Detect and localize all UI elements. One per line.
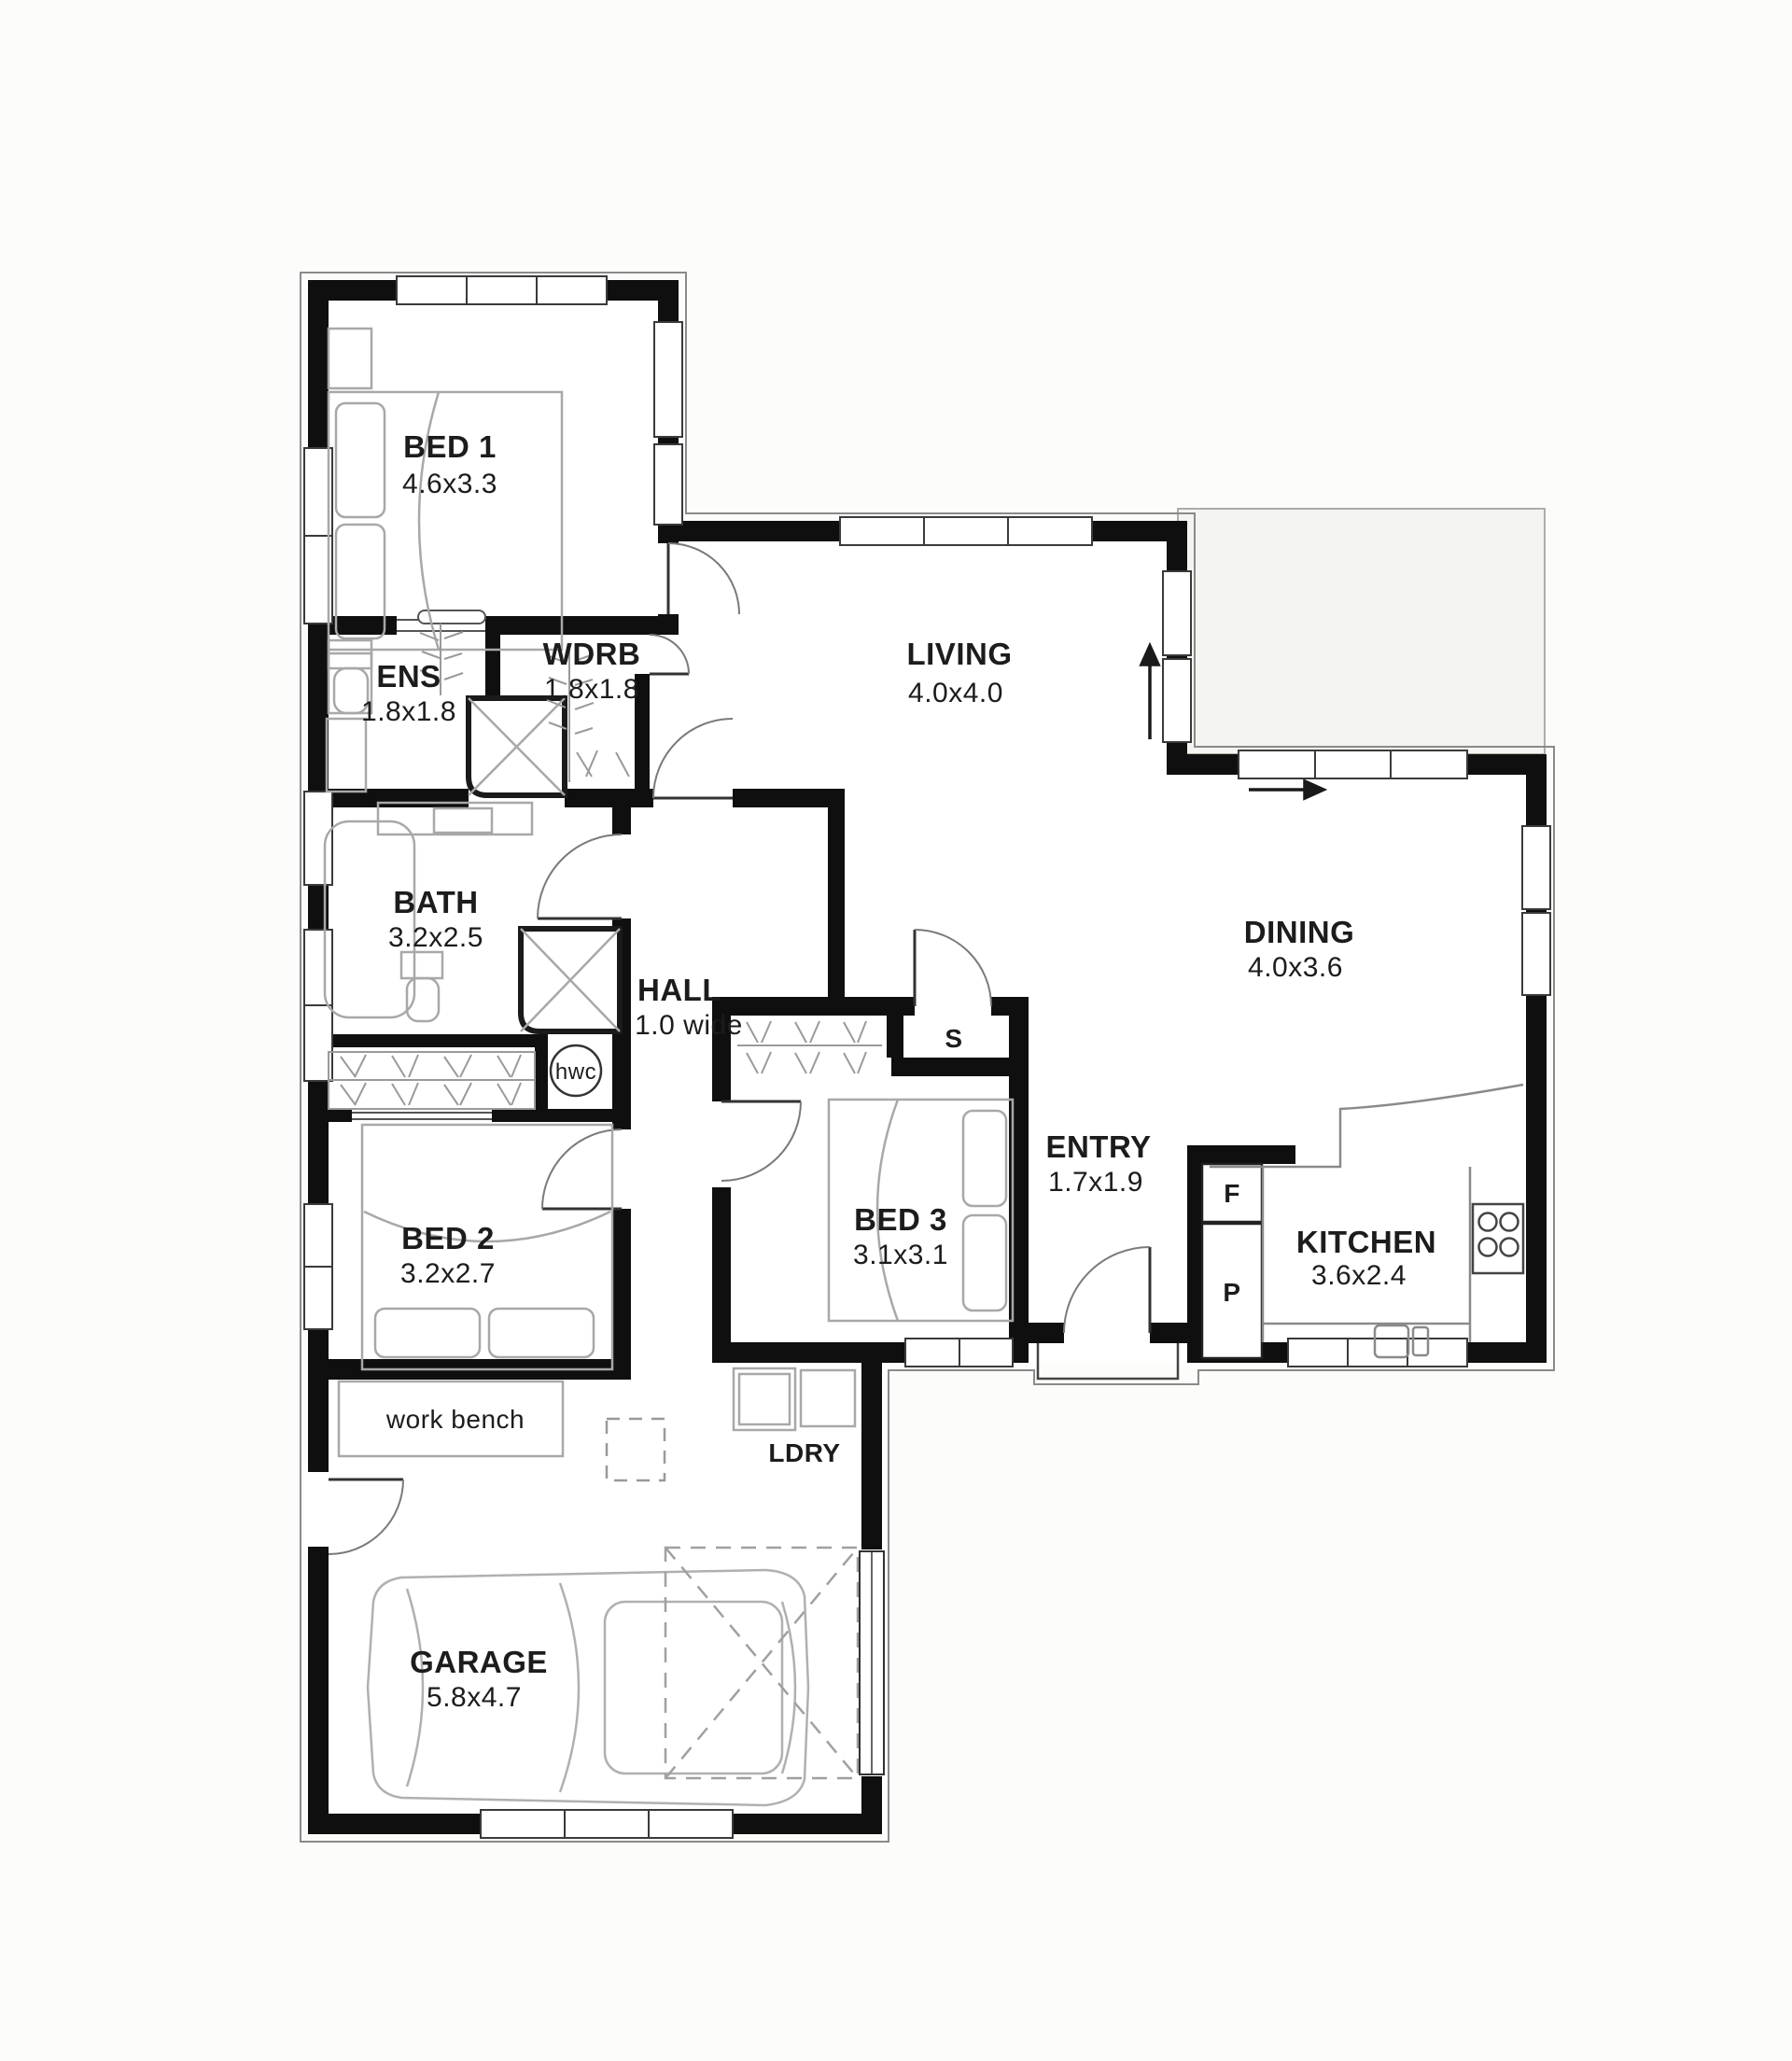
cooktop bbox=[1473, 1204, 1523, 1273]
label-hwc: hwc bbox=[555, 1059, 596, 1085]
room-label-ens: ENS bbox=[376, 659, 441, 694]
room-dims-kitchen: 3.6x2.4 bbox=[1311, 1260, 1407, 1291]
floor-plan-drawing: BED 1 4.6x3.3 ENS 1.8x1.8 WDRB 1.8x1.8 L… bbox=[0, 0, 1792, 2061]
room-label-ldry: LDRY bbox=[768, 1438, 840, 1467]
room-label-entry: ENTRY bbox=[1045, 1129, 1151, 1164]
room-label-wdrb: WDRB bbox=[543, 637, 641, 671]
room-dims-entry: 1.7x1.9 bbox=[1048, 1167, 1143, 1198]
room-dims-garage: 5.8x4.7 bbox=[427, 1682, 522, 1713]
garage-side-door-opening bbox=[304, 1472, 332, 1547]
room-label-dining: DINING bbox=[1244, 915, 1355, 949]
room-dims-ens: 1.8x1.8 bbox=[361, 696, 456, 727]
label-fridge: F bbox=[1224, 1179, 1240, 1208]
deck-outline bbox=[1178, 509, 1545, 754]
room-label-bed3: BED 3 bbox=[854, 1202, 947, 1237]
room-dims-wdrb: 1.8x1.8 bbox=[544, 674, 639, 705]
label-workbench: work bench bbox=[385, 1405, 525, 1434]
room-dims-bed2: 3.2x2.7 bbox=[400, 1258, 496, 1289]
floor-plan-page: BED 1 4.6x3.3 ENS 1.8x1.8 WDRB 1.8x1.8 L… bbox=[0, 0, 1792, 2061]
room-dims-bath: 3.2x2.5 bbox=[388, 922, 483, 953]
room-label-bed2: BED 2 bbox=[401, 1221, 495, 1255]
room-label-garage: GARAGE bbox=[410, 1645, 548, 1679]
room-dims-living: 4.0x4.0 bbox=[908, 678, 1003, 708]
room-label-hall: HALL bbox=[637, 973, 721, 1007]
label-pantry: P bbox=[1223, 1278, 1240, 1307]
room-dims-bed1: 4.6x3.3 bbox=[402, 469, 497, 499]
room-label-kitchen: KITCHEN bbox=[1296, 1225, 1436, 1259]
label-storage: S bbox=[945, 1024, 962, 1053]
room-dims-dining: 4.0x3.6 bbox=[1248, 952, 1343, 983]
room-label-bed1: BED 1 bbox=[403, 429, 497, 464]
room-label-living: LIVING bbox=[906, 637, 1012, 671]
room-dims-hall: 1.0 wide bbox=[635, 1010, 743, 1041]
room-label-bath: BATH bbox=[393, 885, 478, 919]
room-dims-bed3: 3.1x3.1 bbox=[853, 1240, 948, 1270]
